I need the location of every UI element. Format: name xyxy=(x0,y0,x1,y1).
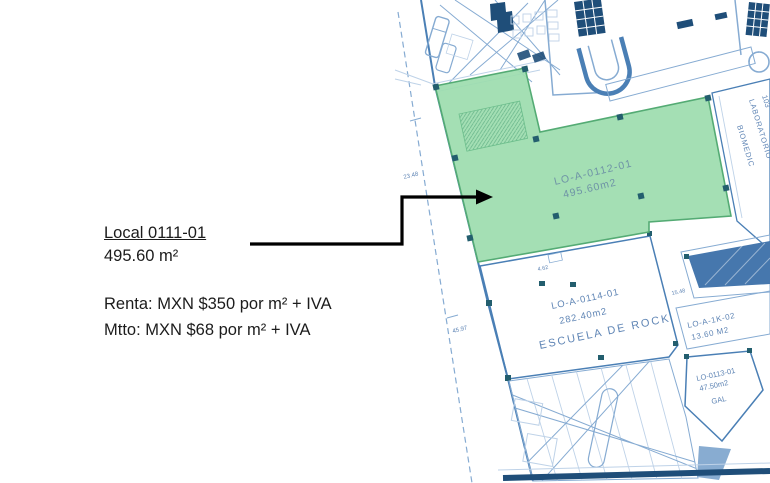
stair-flight-shape xyxy=(490,2,514,33)
unit-0113-region: LO-0113-01 47.50m2 GAL xyxy=(684,348,763,441)
dim-23-48: 23.48 xyxy=(403,171,420,181)
dim-45-97: 45.97 xyxy=(452,325,469,335)
dim-4-62: 4.62 xyxy=(537,265,549,273)
panel-structure xyxy=(681,235,770,298)
kiosk-region: LO-A-1K-02 13.60 M2 15.48 xyxy=(671,288,770,349)
kiosk-id-label: LO-A-1K-02 xyxy=(687,311,736,330)
annotation-block: Local 0111-01 495.60 m² Renta: MXN $350 … xyxy=(104,224,332,343)
mtto-line: Mtto: MXN $68 por m² + IVA xyxy=(104,318,332,344)
local-title: Local 0111-01 xyxy=(104,224,332,243)
highlight-unit-0112: LO-A-0112-01 495.60m2 xyxy=(432,65,731,262)
dim-15-48: 15.48 xyxy=(671,288,686,297)
lab-number-label: 103 xyxy=(760,94,770,109)
furniture-block xyxy=(511,10,559,63)
escuela-area-label: 282.40m2 xyxy=(558,306,608,327)
renta-line: Renta: MXN $350 por m² + IVA xyxy=(104,292,332,318)
stair-core-a xyxy=(574,0,606,37)
bottom-wall-band xyxy=(498,463,770,478)
local-area: 495.60 m² xyxy=(104,247,332,266)
lab-name-label-2: BIOMEDIC xyxy=(735,124,756,168)
dark-fixtures xyxy=(676,12,727,29)
escuela-id-label: LO-A-0114-01 xyxy=(550,287,620,312)
slide-canvas: 103 LABORATORIO BIOMEDIC LO-A-1K-02 13.6… xyxy=(0,0,770,483)
unit-0113-name: GAL xyxy=(711,394,728,406)
pricing-block: Renta: MXN $350 por m² + IVA Mtto: MXN $… xyxy=(104,292,332,343)
stair-core-b xyxy=(746,2,770,37)
bottom-open-area xyxy=(500,340,700,483)
